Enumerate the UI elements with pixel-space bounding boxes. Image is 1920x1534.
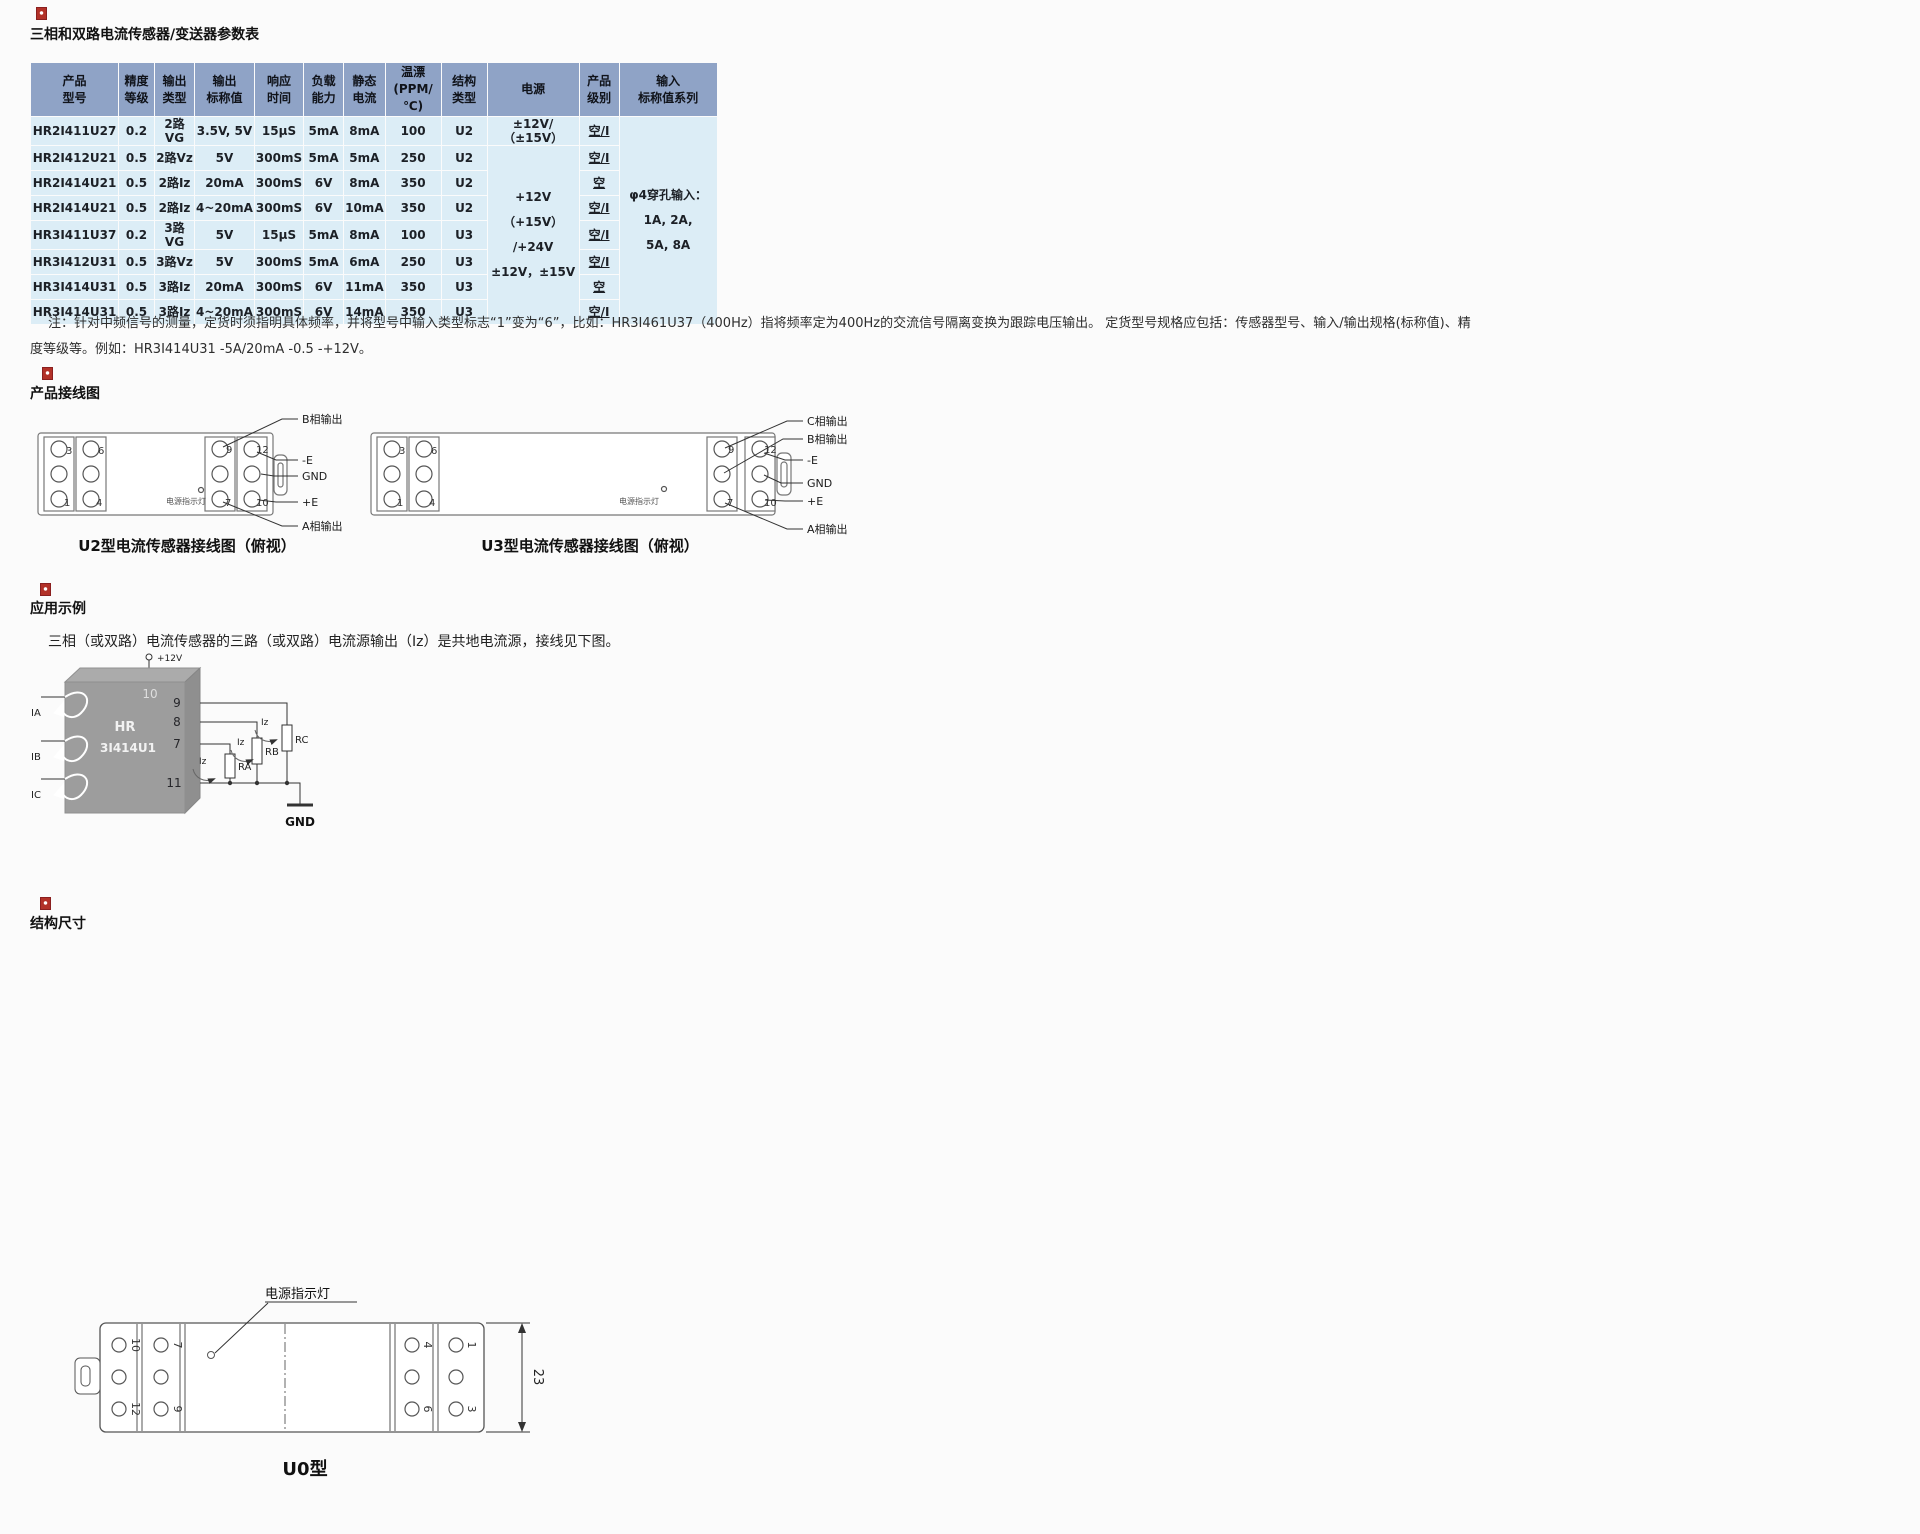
pin-number-8: 8	[173, 715, 181, 729]
col-header-line: 时间	[256, 90, 302, 107]
col-header-line: 能力	[305, 90, 342, 107]
cell-accuracy: 0.5	[119, 196, 155, 221]
cell-quiescent: 10mA	[344, 196, 386, 221]
terminal-number: 9	[226, 445, 232, 456]
cell-load: 6V	[304, 275, 344, 300]
col-header: 产品级别	[579, 63, 619, 117]
terminal-number: 4	[421, 1342, 434, 1349]
cell-load: 6V	[304, 171, 344, 196]
output-wires	[200, 703, 300, 805]
cell-load: 5mA	[304, 146, 344, 171]
cell-grade: 空/I	[579, 250, 619, 275]
cell-response: 300mS	[254, 171, 303, 196]
resistor-label-rb: RB	[265, 747, 279, 758]
datasheet-page: 三相和双路电流传感器/变送器参数表 产品型号 精度等级 输出类型 输出标称值 响…	[0, 0, 1920, 1534]
cell-response: 300mS	[254, 275, 303, 300]
col-header-line: 输入	[621, 73, 716, 90]
input-label-ib: IB	[31, 752, 41, 763]
pin-label-neg-e: -E	[807, 454, 818, 467]
cell-out-type: 3路VG	[155, 221, 195, 250]
col-header-line: 结构	[443, 73, 486, 90]
cell-drift: 350	[385, 275, 441, 300]
resistor-label-rc: RC	[295, 735, 308, 746]
terminal-number: 6	[98, 446, 104, 457]
col-header: 精度等级	[119, 63, 155, 117]
u3-wiring-diagram: 3 6 1 4 9 12 7 10 电源指示灯 C相输出 B相输出 -E GND…	[365, 405, 910, 535]
terminal-number: 9	[171, 1406, 184, 1413]
cell-response: 300mS	[254, 146, 303, 171]
pin-label-b-out: B相输出	[302, 412, 343, 426]
resistor-rb	[252, 738, 262, 764]
dimensions-section-title: 结构尺寸	[30, 913, 86, 933]
terminal-number: 1	[397, 498, 403, 509]
table-row: HR2I414U21 0.5 2路Iz 4~20mA 300mS 6V 10mA…	[31, 196, 718, 221]
table-row: HR3I411U37 0.2 3路VG 5V 15μS 5mA 8mA 100 …	[31, 221, 718, 250]
col-header-line: 产品	[32, 73, 117, 90]
cell-drift: 250	[385, 146, 441, 171]
dim-label-23: 23	[530, 1369, 545, 1386]
col-header-line: 等级	[120, 90, 153, 107]
order-note-line2: 度等级等。例如：HR3I414U31 -5A/20mA -0.5 -+12V。	[30, 338, 372, 357]
cell-accuracy: 0.2	[119, 117, 155, 146]
terminal-number: 1	[465, 1342, 478, 1349]
iz-label: Iz	[261, 718, 269, 728]
cell-out-nominal: 20mA	[195, 171, 255, 196]
iz-label: Iz	[237, 738, 245, 748]
terminal-number: 3	[399, 446, 405, 457]
cell-model: HR2I414U21	[31, 171, 119, 196]
cell-response: 300mS	[254, 196, 303, 221]
terminal-number: 7	[171, 1342, 184, 1349]
chip-name-line2: 3I414U1	[100, 741, 156, 755]
cell-structure: U3	[441, 250, 487, 275]
col-header: 电源	[487, 63, 579, 117]
cell-structure: U2	[441, 117, 487, 146]
terminal-number: 6	[421, 1406, 434, 1413]
application-section-title: 应用示例	[30, 598, 86, 618]
section-anchor-icon	[42, 367, 53, 380]
col-header-line: 静态	[345, 73, 384, 90]
cell-out-type: 2路Iz	[155, 171, 195, 196]
cell-model: HR3I412U31	[31, 250, 119, 275]
pin-number-10: 10	[142, 687, 157, 701]
terminal-number: 7	[727, 498, 733, 509]
terminal-number: 6	[431, 446, 437, 457]
cell-load: 5mA	[304, 221, 344, 250]
cell-structure: U3	[441, 221, 487, 250]
input-series-line: φ4穿孔输入：	[621, 183, 716, 208]
cell-out-nominal: 5V	[195, 146, 255, 171]
section-anchor-icon	[40, 583, 51, 596]
cell-grade: 空/I	[579, 117, 619, 146]
pin-number-9: 9	[173, 696, 181, 710]
pin-number-11: 11	[166, 776, 181, 790]
col-header-line: 产品	[581, 73, 618, 90]
col-header-line: 级别	[581, 90, 618, 107]
power-line: ±12V，±15V	[489, 260, 578, 285]
power-line: +12V（+15V）	[489, 185, 578, 235]
cell-drift: 350	[385, 196, 441, 221]
supply-label: +12V	[157, 654, 183, 664]
pin-label-neg-e: -E	[302, 454, 313, 467]
col-header-line: 标称值系列	[621, 90, 716, 107]
cell-grade: 空	[579, 171, 619, 196]
params-table: 产品型号 精度等级 输出类型 输出标称值 响应时间 负载能力 静态电流 温漂(P…	[30, 62, 718, 325]
col-header: 结构类型	[441, 63, 487, 117]
bottom-view-caption: U0型	[250, 1455, 360, 1481]
col-header: 产品型号	[31, 63, 119, 117]
input-series-line: 5A, 8A	[621, 233, 716, 258]
cell-accuracy: 0.5	[119, 171, 155, 196]
col-header-line: 电源	[489, 81, 578, 98]
pin-label-b-out: B相输出	[807, 432, 848, 446]
cell-power-merged: +12V（+15V） /+24V ±12V，±15V	[487, 146, 579, 325]
cell-model: HR2I411U27	[31, 117, 119, 146]
terminal-number: 12	[129, 1402, 142, 1416]
col-header-line: 类型	[156, 90, 193, 107]
cell-quiescent: 8mA	[344, 117, 386, 146]
u2-pin-labels: B相输出 -E GND +E A相输出	[302, 412, 343, 533]
cell-grade: 空/I	[579, 146, 619, 171]
cell-accuracy: 0.5	[119, 146, 155, 171]
input-series-line: 1A, 2A,	[621, 208, 716, 233]
u2-caption: U2型电流传感器接线图（俯视）	[62, 535, 312, 556]
cell-out-nominal: 5V	[195, 221, 255, 250]
terminal-number: 10	[129, 1338, 142, 1352]
resistor-label-ra: RA	[238, 762, 252, 773]
table-header-row: 产品型号 精度等级 输出类型 输出标称值 响应时间 负载能力 静态电流 温漂(P…	[31, 63, 718, 117]
col-header: 温漂(PPM/℃)	[385, 63, 441, 117]
ground-label: GND	[285, 815, 315, 829]
pin-label-c-out: C相输出	[807, 414, 848, 428]
order-note-line1: 注：针对中频信号的测量，定货时须指明具体频率，并将型号中输入类型标志“1”变为“…	[30, 312, 1471, 331]
power-line: /+24V	[489, 235, 578, 260]
load-resistors	[225, 725, 292, 778]
pin-label-gnd: GND	[302, 470, 327, 483]
cell-out-type: 3路Iz	[155, 275, 195, 300]
pin-label-gnd: GND	[807, 477, 832, 490]
dim-23	[486, 1323, 530, 1432]
cell-grade: 空/I	[579, 196, 619, 221]
cell-out-type: 2路Iz	[155, 196, 195, 221]
cell-quiescent: 8mA	[344, 221, 386, 250]
col-header-line: 电流	[345, 90, 384, 107]
cell-out-type: 2路Vz	[155, 146, 195, 171]
u3-pin-labels: C相输出 B相输出 -E GND +E A相输出	[807, 414, 848, 536]
col-header: 输出标称值	[195, 63, 255, 117]
col-header-line: 输出	[196, 73, 253, 90]
cell-quiescent: 6mA	[344, 250, 386, 275]
cell-structure: U3	[441, 275, 487, 300]
col-header-line: 类型	[443, 90, 486, 107]
cell-out-type: 2路VG	[155, 117, 195, 146]
params-section-title: 三相和双路电流传感器/变送器参数表	[30, 24, 259, 44]
col-header: 静态电流	[344, 63, 386, 117]
cell-accuracy: 0.5	[119, 275, 155, 300]
col-header-line: 响应	[256, 73, 302, 90]
col-header-line: 标称值	[196, 90, 253, 107]
col-header: 负载能力	[304, 63, 344, 117]
cell-quiescent: 5mA	[344, 146, 386, 171]
power-led	[208, 1352, 215, 1359]
power-led	[662, 487, 667, 492]
cell-drift: 250	[385, 250, 441, 275]
application-circuit: +12V 10 HR 3I414U1 9 8 7 11 IA IB IC	[25, 648, 345, 848]
terminal-number: 4	[429, 498, 435, 509]
cell-quiescent: 8mA	[344, 171, 386, 196]
section-anchor-icon	[36, 7, 47, 20]
power-led	[199, 488, 204, 493]
table-row: HR2I411U27 0.2 2路VG 3.5V, 5V 15μS 5mA 8m…	[31, 117, 718, 146]
resistor-rc	[282, 725, 292, 751]
col-header-line: 温漂	[387, 64, 440, 81]
cell-load: 5mA	[304, 117, 344, 146]
pin-label-pos-e: +E	[302, 496, 318, 509]
pin-label-pos-e: +E	[807, 495, 823, 508]
supply-terminal	[146, 654, 152, 660]
cell-structure: U2	[441, 146, 487, 171]
cell-model: HR3I414U31	[31, 275, 119, 300]
iz-label: Iz	[199, 757, 207, 767]
pin-number-7: 7	[173, 737, 181, 751]
cell-input-series: φ4穿孔输入： 1A, 2A, 5A, 8A	[619, 117, 717, 325]
cell-response: 15μS	[254, 117, 303, 146]
cell-model: HR2I414U21	[31, 196, 119, 221]
cell-grade: 空	[579, 275, 619, 300]
section-anchor-icon	[40, 897, 51, 910]
cell-load: 5mA	[304, 250, 344, 275]
cell-response: 300mS	[254, 250, 303, 275]
cell-out-nominal: 4~20mA	[195, 196, 255, 221]
pin-label-a-out: A相输出	[302, 519, 343, 533]
col-header-line: 型号	[32, 90, 117, 107]
input-label-ic: IC	[31, 790, 41, 801]
u3-caption: U3型电流传感器接线图（俯视）	[445, 535, 735, 556]
col-header: 输出类型	[155, 63, 195, 117]
terminal-number: 3	[66, 446, 72, 457]
col-header-line: 负载	[305, 73, 342, 90]
cell-quiescent: 11mA	[344, 275, 386, 300]
cell-model: HR3I411U37	[31, 221, 119, 250]
u2-wiring-diagram: 3 6 1 4 9 12 7 10 电源指示灯 B相输出 -E GND +E A…	[30, 405, 375, 535]
table-row: HR2I412U21 0.5 2路Vz 5V 300mS 5mA 5mA 250…	[31, 146, 718, 171]
cell-accuracy: 0.5	[119, 250, 155, 275]
din-clip-slot	[81, 1366, 90, 1386]
power-led-label: 电源指示灯	[265, 1287, 330, 1302]
terminal-number: 1	[64, 498, 70, 509]
table-row: HR3I414U31 0.5 3路Iz 20mA 300mS 6V 11mA 3…	[31, 275, 718, 300]
resistor-ra	[225, 754, 235, 778]
bottom-view-drawing: 10 12 7 9 4 6 1 3 电源指示灯 23	[60, 1283, 565, 1453]
cell-out-nominal: 5V	[195, 250, 255, 275]
cell-load: 6V	[304, 196, 344, 221]
cell-grade: 空/I	[579, 221, 619, 250]
table-row: HR2I414U21 0.5 2路Iz 20mA 300mS 6V 8mA 35…	[31, 171, 718, 196]
col-header: 响应时间	[254, 63, 303, 117]
cell-model: HR2I412U21	[31, 146, 119, 171]
cell-power: ±12V/（±15V）	[487, 117, 579, 146]
cell-drift: 100	[385, 117, 441, 146]
power-led-label: 电源指示灯	[166, 496, 206, 506]
col-header-line: 输出	[156, 73, 193, 90]
cell-structure: U2	[441, 196, 487, 221]
col-header: 输入标称值系列	[619, 63, 717, 117]
cell-accuracy: 0.2	[119, 221, 155, 250]
terminal-number: 10	[256, 498, 269, 509]
cell-out-type: 3路Vz	[155, 250, 195, 275]
cell-drift: 350	[385, 171, 441, 196]
col-header-line: (PPM/℃)	[387, 81, 440, 115]
cell-structure: U2	[441, 171, 487, 196]
cell-out-nominal: 20mA	[195, 275, 255, 300]
table-row: HR3I412U31 0.5 3路Vz 5V 300mS 5mA 6mA 250…	[31, 250, 718, 275]
pin-label-a-out: A相输出	[807, 522, 848, 536]
chip-name-line1: HR	[115, 720, 136, 735]
power-led-label: 电源指示灯	[619, 496, 659, 506]
col-header-line: 精度	[120, 73, 153, 90]
terminal-number: 4	[96, 498, 102, 509]
cell-response: 15μS	[254, 221, 303, 250]
front-view-drawing: A B C 35 101 70.5	[30, 935, 550, 1270]
cell-out-nominal: 3.5V, 5V	[195, 117, 255, 146]
input-label-ia: IA	[31, 708, 41, 719]
cell-drift: 100	[385, 221, 441, 250]
wiring-section-title: 产品接线图	[30, 383, 100, 403]
terminal-number: 3	[465, 1406, 478, 1413]
